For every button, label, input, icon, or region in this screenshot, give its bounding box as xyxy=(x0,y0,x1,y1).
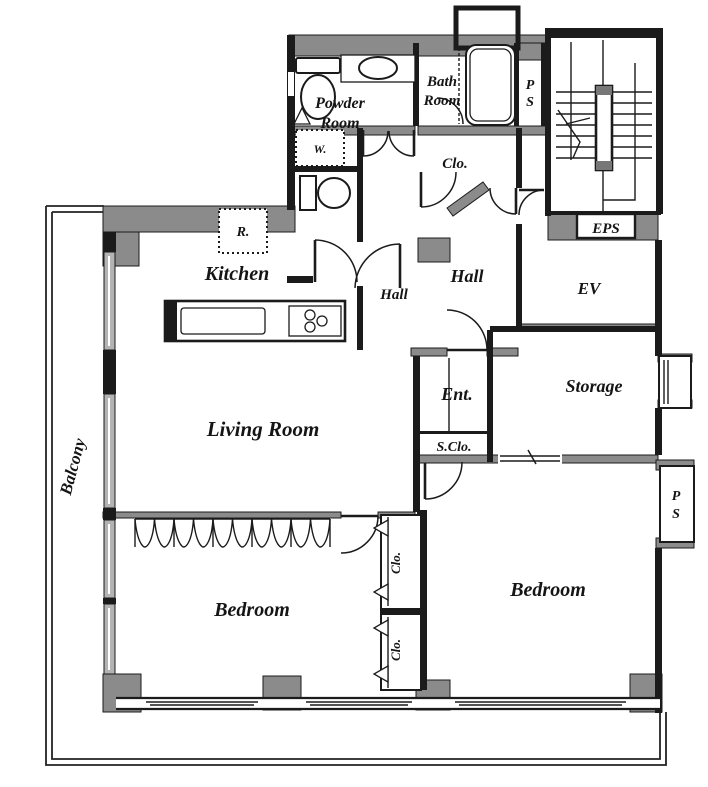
accordion-closet xyxy=(135,519,330,547)
room-label-bedroom-right: Bedroom xyxy=(509,579,586,601)
balcony-windows xyxy=(104,252,115,674)
closet-strip xyxy=(374,515,421,690)
room-label-ps-lower-1: P xyxy=(672,489,681,504)
room-label-bath-2: Room xyxy=(423,93,461,109)
labels: Powder Room Bath Room P S Clo. Hall Hall… xyxy=(56,74,681,661)
ps-lower-box xyxy=(660,466,694,542)
room-label-balcony: Balcony xyxy=(56,436,90,498)
room-label-entrance: Ent. xyxy=(440,384,473,404)
fixture-label-refrigerator: R. xyxy=(236,225,250,240)
room-label-hall-kitchen: Hall xyxy=(379,287,408,303)
room-label-storage: Storage xyxy=(565,376,622,396)
room-label-kitchen: Kitchen xyxy=(204,263,269,285)
room-label-ev: EV xyxy=(577,279,602,298)
room-label-closet-1: Clo. xyxy=(388,552,403,574)
staircase xyxy=(556,40,652,211)
room-label-eps: EPS xyxy=(591,221,620,237)
floor-plan-drawing: Powder Room Bath Room P S Clo. Hall Hall… xyxy=(0,0,708,787)
room-label-bedroom-left: Bedroom xyxy=(213,599,290,621)
room-label-ps-upper-1: P xyxy=(526,78,535,93)
room-label-hall-main: Hall xyxy=(449,266,483,286)
room-label-bath-1: Bath xyxy=(426,74,457,90)
kitchen-counter xyxy=(165,301,345,341)
room-label-powder-2: Room xyxy=(319,115,359,132)
bathtub xyxy=(459,45,515,125)
fixtures xyxy=(165,45,515,341)
room-label-ps-upper-2: S xyxy=(526,95,534,110)
room-label-powder-1: Powder xyxy=(314,95,366,112)
room-label-closet-upper: Clo. xyxy=(442,156,467,172)
fixture-label-washer: W. xyxy=(314,142,327,156)
storage-window xyxy=(659,356,691,408)
toilet-wc xyxy=(300,176,350,210)
room-label-living: Living Room xyxy=(206,417,320,441)
floor-plan-page: { "colors": { "wall_gray": "#8b8b8b", "l… xyxy=(0,0,708,787)
room-label-ps-lower-2: S xyxy=(672,507,680,522)
sink-counter xyxy=(341,55,415,82)
room-label-closet-2: Clo. xyxy=(388,639,403,661)
bottom-wall-windows xyxy=(116,698,660,709)
room-label-shoe-closet: S.Clo. xyxy=(436,440,471,455)
